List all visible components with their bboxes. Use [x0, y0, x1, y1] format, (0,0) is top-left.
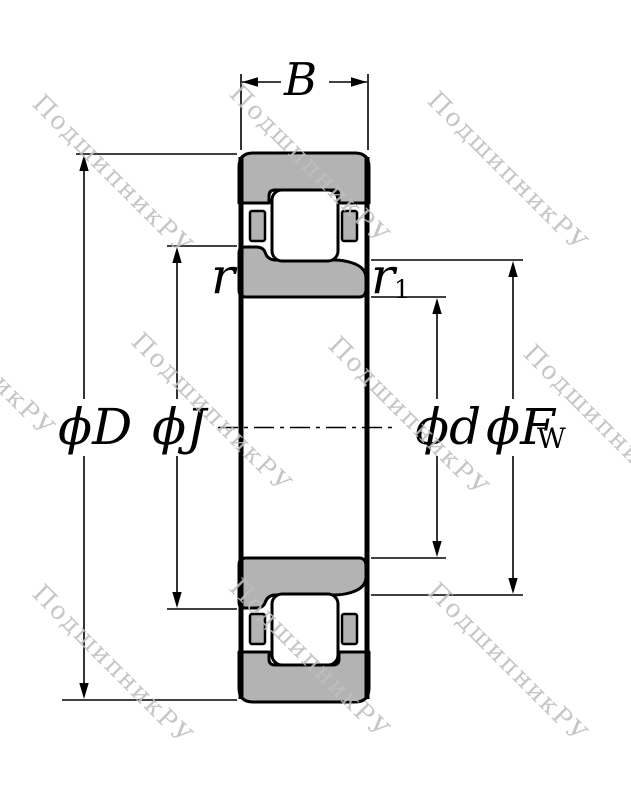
label-chamfer-r1: r — [371, 251, 395, 301]
label-width-B: B — [284, 57, 317, 102]
arrow-down — [172, 592, 181, 608]
cage-bar-top-right — [342, 211, 357, 241]
label-bore-diameter: ϕd — [415, 402, 481, 452]
label-outer-diameter: ϕD — [58, 402, 132, 452]
arrow-down — [79, 683, 88, 699]
cage-bar-top-left — [250, 211, 265, 241]
arrow-down — [432, 541, 441, 557]
roller-bottom — [272, 594, 338, 665]
arrow-up — [172, 247, 181, 263]
label-chamfer-r1-subscript: 1 — [394, 277, 410, 302]
bearing-technical-drawing: B ϕD ϕJ ϕd ϕF W r r 1 ПодшипникРУ Подшип… — [0, 0, 631, 792]
arrow-up — [79, 155, 88, 171]
arrow-up — [432, 298, 441, 314]
roller-top — [272, 190, 338, 261]
arrow-left — [242, 77, 258, 87]
cage-bar-bottom-left — [250, 614, 265, 644]
label-raceway-diameter-subscript: W — [537, 425, 566, 453]
arrow-down — [508, 578, 517, 594]
arrow-up — [508, 261, 517, 277]
label-rib-diameter: ϕJ — [152, 402, 206, 452]
arrow-right — [351, 77, 367, 87]
drawing-canvas — [0, 0, 631, 792]
cage-bar-bottom-right — [342, 614, 357, 644]
label-chamfer-r: r — [211, 251, 235, 301]
